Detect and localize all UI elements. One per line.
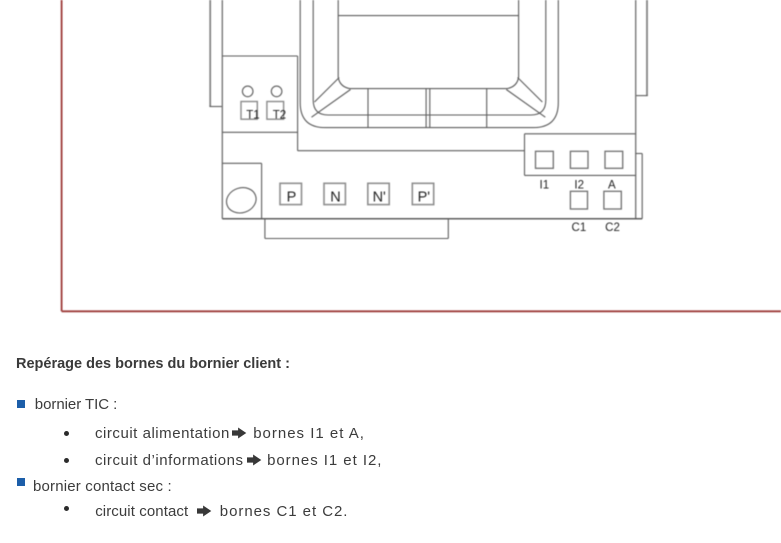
svg-text:N: N — [330, 190, 340, 206]
svg-text:I1: I1 — [540, 179, 550, 191]
svg-text:A: A — [608, 179, 616, 191]
svg-text:T2: T2 — [273, 110, 286, 122]
svg-text:P': P' — [418, 190, 431, 206]
svg-text:C1: C1 — [572, 222, 587, 234]
svg-text:T1: T1 — [246, 110, 259, 122]
svg-text:N': N' — [373, 190, 386, 206]
svg-text:C2: C2 — [605, 222, 620, 234]
svg-text:P: P — [287, 190, 297, 206]
svg-text:I2: I2 — [574, 179, 584, 191]
